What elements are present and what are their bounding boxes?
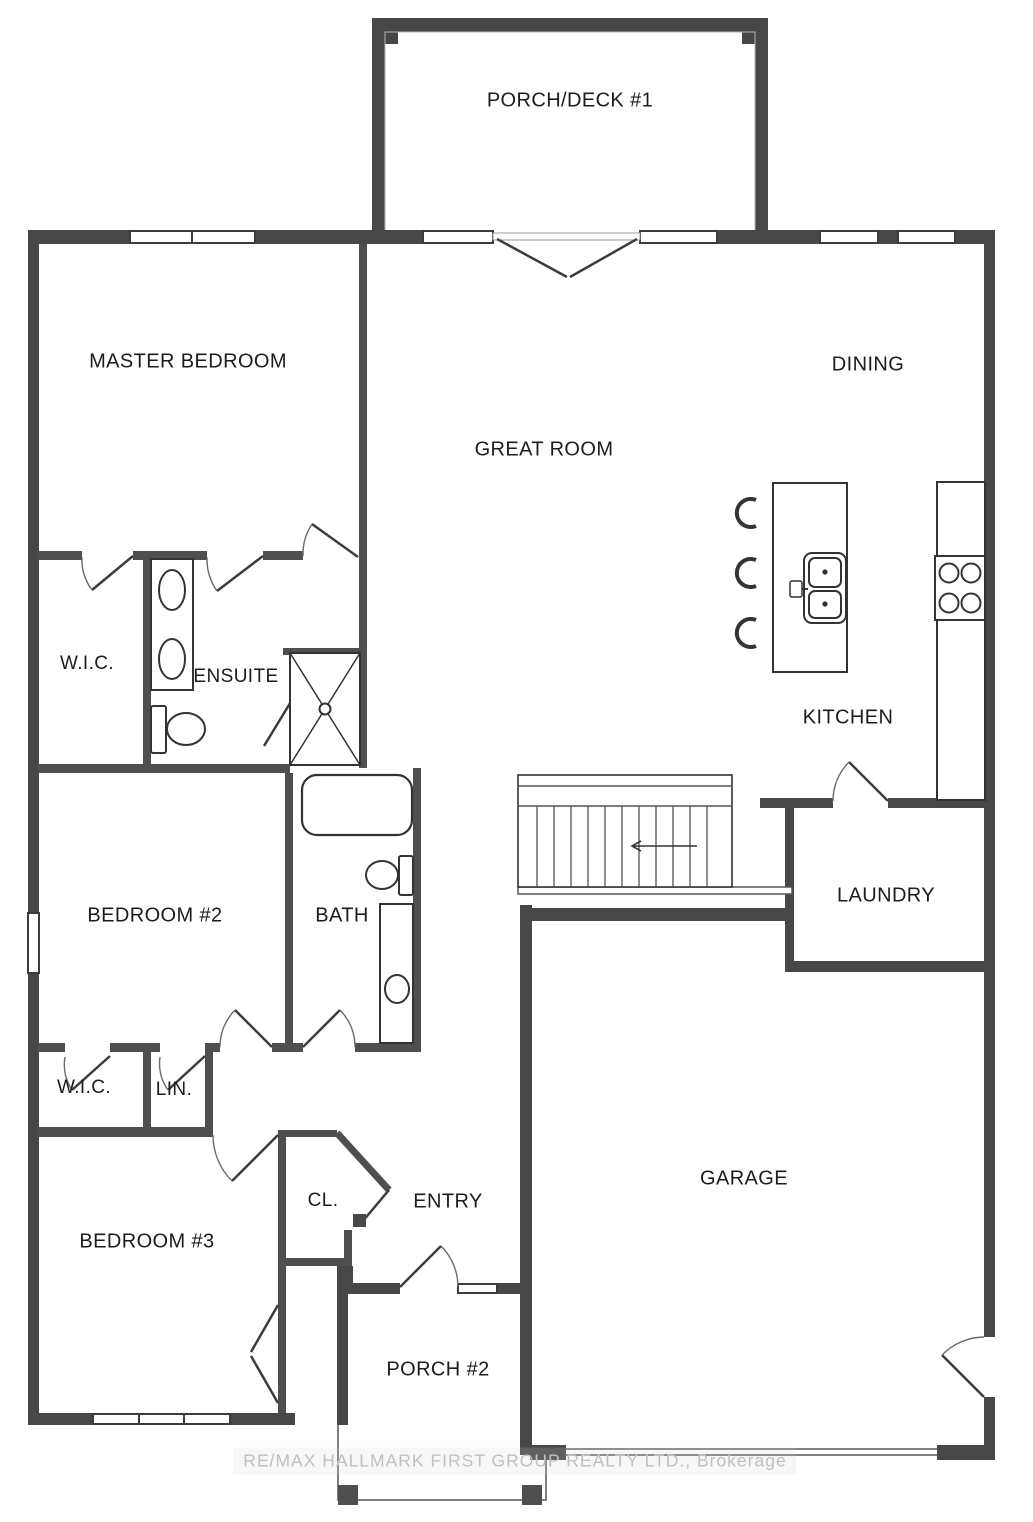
- garage-side-door-icon: [942, 1355, 984, 1397]
- entry-closet-door-icon: [362, 1190, 389, 1222]
- room-label-dining: DINING: [832, 354, 904, 377]
- bar-stools-icon: [737, 499, 756, 647]
- bath-door-icon: [303, 1010, 340, 1047]
- room-label-master-bedroom: MASTER BEDROOM: [89, 351, 287, 374]
- porch-post-icon: [522, 1485, 542, 1505]
- bath-vanity-icon: [380, 904, 413, 1043]
- room-label-bedroom-3: BEDROOM #3: [79, 1231, 214, 1254]
- room-label-great-room: GREAT ROOM: [475, 439, 614, 462]
- brokerage-watermark: RE/MAX HALLMARK FIRST GROUP REALTY LTD.,…: [233, 1448, 796, 1475]
- ensuite-toilet-icon: [151, 706, 205, 753]
- room-label-bath: BATH: [315, 905, 368, 928]
- bedroom2-door-icon: [235, 1010, 272, 1047]
- bathtub-icon: [302, 775, 412, 835]
- room-label-laundry: LAUNDRY: [837, 885, 935, 908]
- front-door-icon: [400, 1246, 441, 1287]
- laundry-door-icon: [849, 762, 888, 801]
- kitchen-island-icon: [773, 483, 847, 672]
- room-label-wic-2: W.I.C.: [57, 1077, 111, 1099]
- room-label-kitchen: KITCHEN: [803, 707, 894, 730]
- window-dining-1-icon: [820, 231, 878, 243]
- room-label-bedroom-2: BEDROOM #2: [87, 905, 222, 928]
- porch-door-threshold: [493, 233, 640, 240]
- porch-double-door-icon: [497, 239, 567, 277]
- room-label-ensuite: ENSUITE: [193, 666, 278, 688]
- master-door-icon: [312, 524, 358, 557]
- bedroom3-door-icon: [232, 1135, 278, 1181]
- floor-plan-drawing: [0, 0, 1033, 1522]
- stove-icon: [935, 556, 985, 620]
- ensuite-door-icon: [217, 556, 263, 591]
- shower-icon: [290, 653, 360, 765]
- porch-post-icon: [338, 1485, 358, 1505]
- room-label-garage: GARAGE: [700, 1168, 788, 1191]
- floor-plan: PORCH/DECK #1 MASTER BEDROOM GREAT ROOM …: [0, 0, 1033, 1522]
- window-porch-left-icon: [423, 231, 493, 243]
- ensuite-vanity-icon: [151, 559, 193, 690]
- bedroom3-closet-doors-icon: [251, 1305, 278, 1352]
- room-label-entry: ENTRY: [413, 1191, 482, 1214]
- kitchen-counter-icon: [935, 482, 985, 800]
- window-entry-sidelight-icon: [458, 1284, 497, 1293]
- room-label-closet: CL.: [308, 1190, 339, 1212]
- room-label-master-wic: W.I.C.: [60, 653, 114, 675]
- window-bedroom2-icon: [28, 913, 39, 973]
- bath-toilet-icon: [366, 856, 413, 895]
- shower-door-icon: [264, 700, 292, 746]
- window-porch-right-icon: [640, 231, 717, 243]
- room-label-porch-deck-1: PORCH/DECK #1: [487, 90, 653, 113]
- wic-door-icon: [92, 556, 133, 590]
- stairs-icon: [518, 775, 732, 887]
- room-label-linen: LIN.: [156, 1079, 192, 1101]
- window-dining-2-icon: [898, 231, 955, 243]
- room-label-porch-2: PORCH #2: [386, 1359, 489, 1382]
- window-bedroom3-icon: [93, 1414, 230, 1424]
